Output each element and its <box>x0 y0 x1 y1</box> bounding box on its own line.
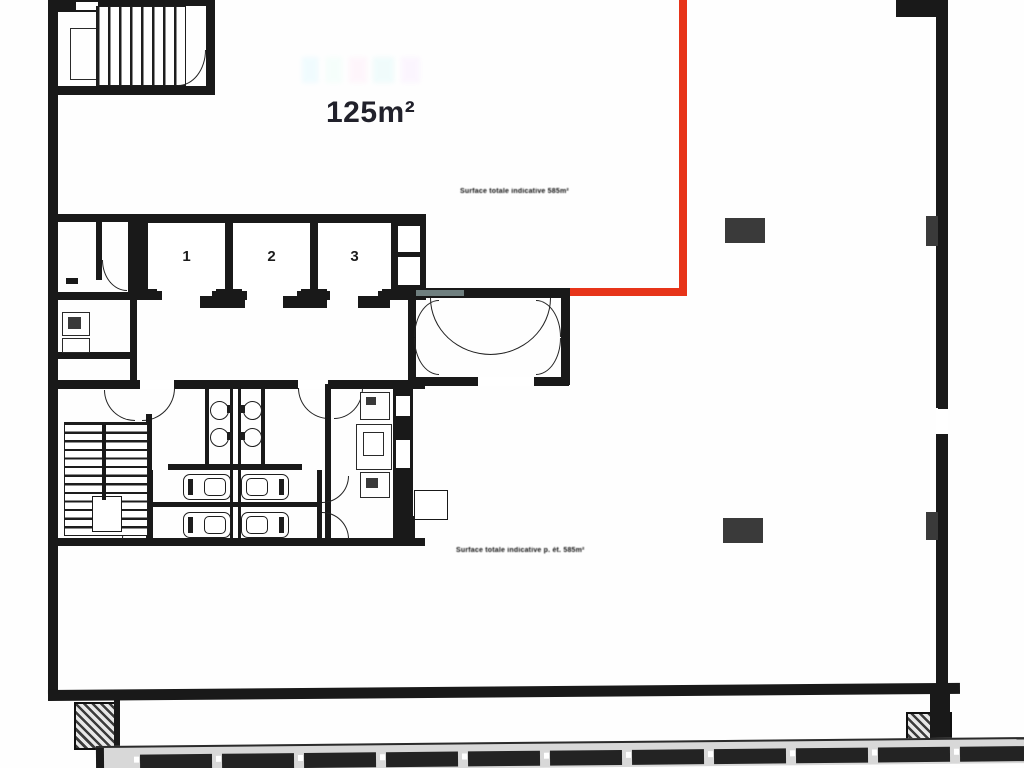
staircase-upper <box>96 6 186 86</box>
kitchen-counter-inner <box>363 432 384 456</box>
red-boundary-horizontal <box>563 288 687 296</box>
vestibule-double-door-left <box>430 298 491 355</box>
door-arc-stair-lower <box>104 390 135 421</box>
surface-note-bottom: Surface totale indicative p. ét. 585m² <box>456 547 585 554</box>
column-detail-bottom-left <box>74 702 116 750</box>
toilet-1 <box>183 474 231 500</box>
service-room-bottom-wall <box>58 292 134 300</box>
vestibule-bottom-opening <box>478 377 534 386</box>
sink-1 <box>210 401 229 420</box>
shaft-annex-box <box>414 490 448 520</box>
wall-right-tick <box>938 404 948 409</box>
facade-panel <box>714 748 786 764</box>
facade-panel <box>878 747 950 763</box>
facade-panel <box>796 748 868 764</box>
vestibule-side-door-right-a <box>536 300 561 337</box>
facade-panel <box>222 753 294 768</box>
stall-door-right-1 <box>322 476 349 503</box>
service-room-mark <box>66 278 78 284</box>
column-top-right <box>896 0 936 17</box>
floor-plan: 125m² Surface totale indicative 585m² Su… <box>0 0 1024 768</box>
stair2-divider <box>102 424 106 500</box>
vestibule-side-door-left-a <box>414 300 439 337</box>
sink-2 <box>210 428 229 447</box>
toilet-4 <box>241 512 289 538</box>
surface-note-top: Surface totale indicative 585m² <box>460 188 569 195</box>
shaft-slot-lower <box>396 440 410 468</box>
elevator-bank-slot-upper <box>398 226 420 252</box>
tap-icon <box>240 432 245 440</box>
elevator-bank-slot-lower <box>398 257 420 285</box>
door-arc-service-room <box>102 260 127 291</box>
stall-divider-horizontal <box>150 502 320 507</box>
vestibule-right-wall <box>561 288 570 385</box>
shaft-dark-fill <box>393 516 415 544</box>
bowl-icon <box>246 516 268 534</box>
kitchen-fixture-top-fill <box>366 397 376 405</box>
vestibule-top-glass <box>416 290 464 296</box>
area-label: 125m² <box>326 96 415 130</box>
facade-cap <box>96 748 104 768</box>
wall-stub-bottom-left <box>114 700 120 752</box>
vestibule-side-door-left-b <box>414 338 439 375</box>
elevator-3-label: 3 <box>350 248 358 265</box>
wc-shelf-wall <box>168 464 302 470</box>
toilet-2 <box>241 474 289 500</box>
column-right-lower <box>926 512 938 540</box>
wall-left <box>48 0 58 700</box>
tap-icon <box>227 432 232 440</box>
ghost-text-artifact <box>302 57 420 83</box>
sink-4 <box>243 428 262 447</box>
sink-partition-left <box>205 384 209 468</box>
vestibule-side-door-right-b <box>536 338 561 375</box>
elevator-1: 1 <box>148 223 225 289</box>
facade-band <box>96 737 1024 768</box>
hall-partition-horizontal <box>58 352 137 359</box>
riser-box-lower <box>62 338 90 353</box>
elevator-door-jamb-2 <box>283 296 327 308</box>
elevator-2: 2 <box>233 223 310 289</box>
wall-right <box>936 0 948 760</box>
wall-bottom <box>48 683 960 701</box>
sink-partition-right <box>261 384 265 468</box>
stair-block-bottom-wall <box>48 86 215 95</box>
toilet-3 <box>183 512 231 538</box>
facade-panel <box>468 751 540 767</box>
riser-box-upper-fill <box>68 317 81 329</box>
facade-panel <box>140 754 212 768</box>
stair-block-right-wall <box>206 0 215 95</box>
service-room-divider <box>96 218 102 280</box>
sink-3 <box>243 401 262 420</box>
tap-icon <box>240 405 245 413</box>
facade-panel <box>386 752 458 768</box>
tap-icon <box>227 405 232 413</box>
stall-door-right-2 <box>322 512 349 539</box>
kitchen-appliance-fill <box>366 478 378 488</box>
facade-panel <box>632 749 704 765</box>
door-arc-stair-block <box>178 50 206 86</box>
cistern-icon <box>279 479 284 495</box>
elevator-3: 3 <box>318 223 391 289</box>
column-open-upper <box>725 218 765 243</box>
cistern-icon <box>279 517 284 533</box>
facade-panel <box>960 746 1024 762</box>
red-boundary-vertical <box>679 0 687 296</box>
door-arc-kitchen <box>334 388 363 419</box>
shaft-slot-upper <box>396 396 410 416</box>
bowl-icon <box>204 516 226 534</box>
column-right-upper <box>926 216 938 246</box>
stair2-turn-outline <box>92 496 122 532</box>
facade-panel <box>550 750 622 766</box>
facade-panel <box>304 752 376 768</box>
cistern-icon <box>188 479 193 495</box>
cistern-icon <box>188 517 193 533</box>
elevator-1-label: 1 <box>182 248 190 265</box>
bowl-icon <box>246 478 268 496</box>
hall-partition-vertical <box>130 300 137 382</box>
stair-block-top-slot <box>76 2 98 10</box>
wc-block-bottom-wall <box>55 538 425 546</box>
wall-right-window-gap <box>936 408 948 434</box>
elevator-door-jamb-1 <box>200 296 245 308</box>
bowl-icon <box>204 478 226 496</box>
elevator-door-jamb-3 <box>358 296 390 308</box>
elevator-2-label: 2 <box>267 248 275 265</box>
column-open-lower <box>723 518 763 543</box>
